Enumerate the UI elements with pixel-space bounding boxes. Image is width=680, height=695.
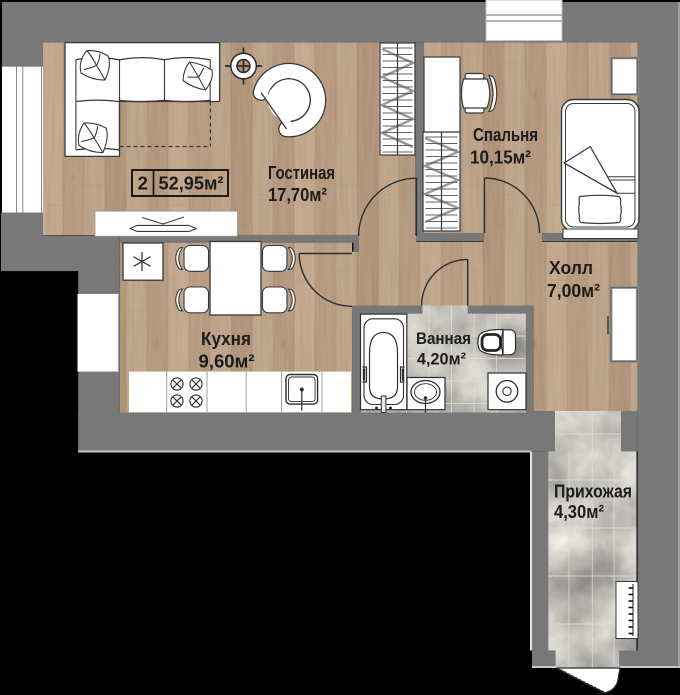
svg-text:10,15м²: 10,15м² (470, 147, 531, 168)
svg-text:2: 2 (138, 173, 148, 194)
svg-text:4,30м²: 4,30м² (554, 501, 604, 522)
svg-text:Холл: Холл (549, 257, 593, 278)
svg-text:Спальня: Спальня (473, 124, 538, 145)
svg-text:4,20м²: 4,20м² (417, 350, 466, 369)
svg-text:9,60м²: 9,60м² (199, 351, 255, 372)
svg-text:Гостиная: Гостиная (268, 162, 335, 183)
svg-text:Прихожая: Прихожая (554, 481, 632, 502)
svg-text:52,95м²: 52,95м² (159, 173, 224, 194)
svg-text:7,00м²: 7,00м² (547, 280, 600, 301)
svg-text:Ванная: Ванная (416, 329, 471, 348)
svg-text:Кухня: Кухня (201, 328, 251, 349)
svg-text:17,70м²: 17,70м² (268, 184, 327, 205)
